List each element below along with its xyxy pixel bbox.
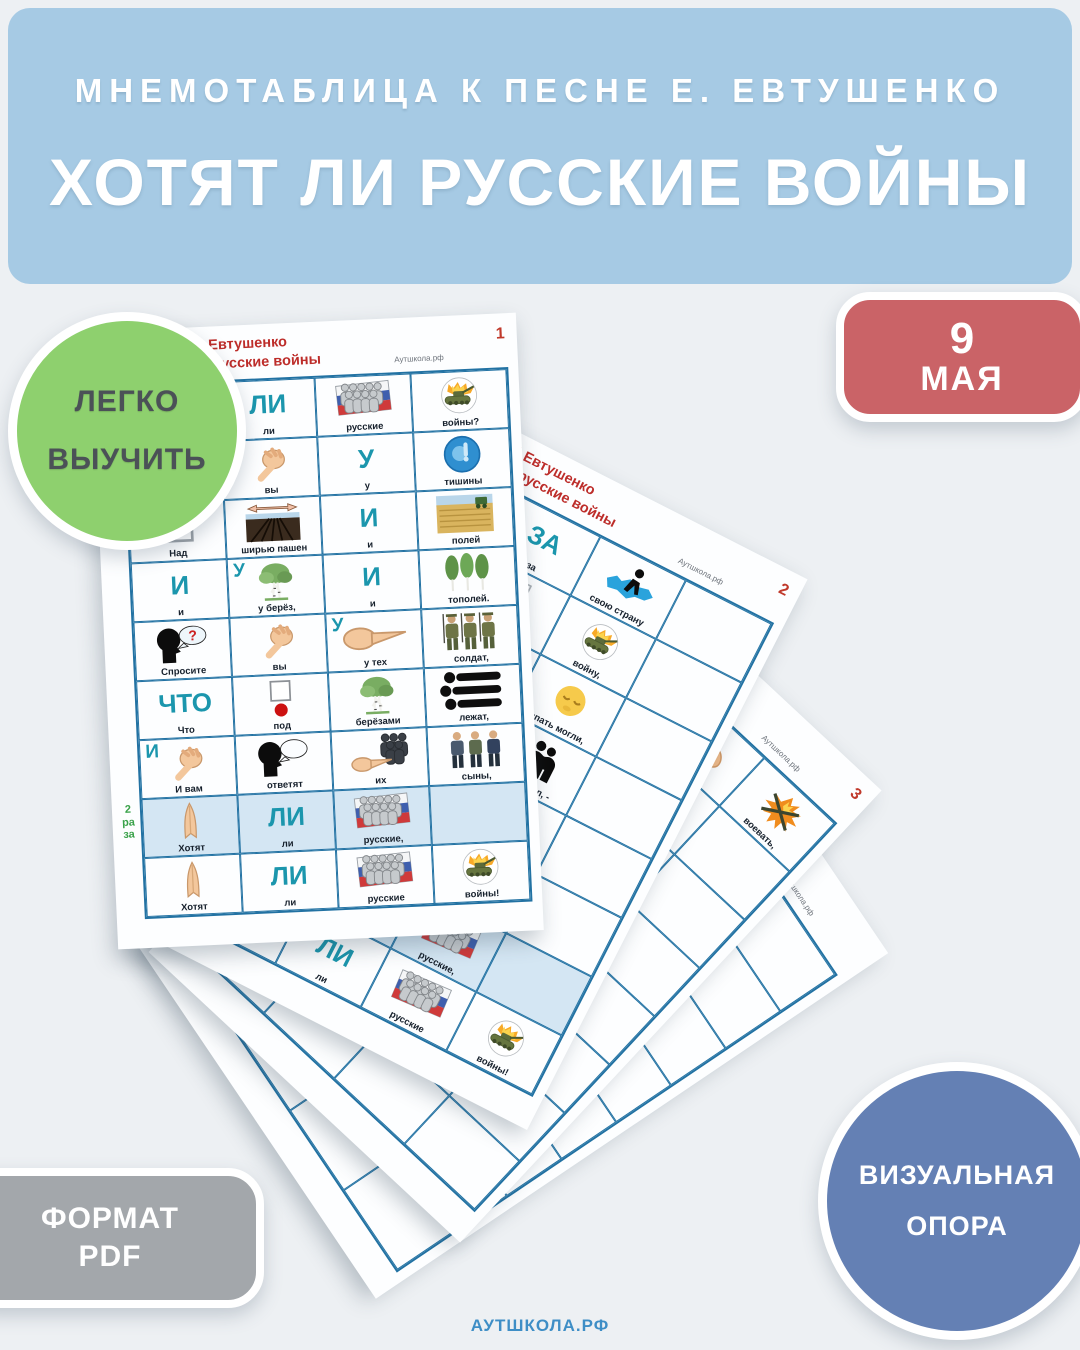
table-cell: ?Спросите — [133, 618, 232, 681]
table-cell: берёзами — [328, 668, 427, 731]
ask-head-icon: ? — [136, 621, 230, 668]
table-cell: Ии — [323, 550, 422, 613]
badge-text: 9 — [950, 317, 974, 362]
table-cell: ЛИли — [240, 849, 339, 912]
table-cell: ЛИли — [237, 790, 336, 853]
badge-text: PDF — [79, 1240, 142, 1274]
table-cell: Ии — [320, 491, 419, 554]
cell-caption: солдат, — [454, 652, 489, 665]
cell-caption: и — [370, 598, 376, 610]
cell-caption: под — [273, 720, 291, 732]
cell-caption: у берёз, — [258, 602, 296, 615]
repeat-twice-label: 2раза — [117, 803, 141, 842]
cell-caption: Хотят — [178, 842, 205, 855]
easy-to-learn-badge: ЛЕГКО ВЫУЧИТЬ — [8, 312, 246, 550]
table-cell: тишины — [413, 428, 512, 491]
table-cell: ширью пашен — [224, 496, 323, 559]
hand-soldiers-icon — [333, 730, 427, 777]
shh-icon — [415, 431, 509, 478]
cell-caption: Над — [169, 547, 188, 559]
point-you-icon — [231, 617, 325, 664]
svg-text:?: ? — [188, 628, 197, 644]
pdf-format-badge: ФОРМАТ PDF — [0, 1168, 264, 1308]
cell-caption: берёзами — [355, 715, 400, 728]
badge-text: ОПОРА — [906, 1211, 1008, 1242]
cell-caption: у — [365, 480, 371, 492]
cell-caption: войны? — [442, 416, 479, 429]
table-cell: Уу — [317, 432, 416, 495]
may-9-badge: 9 МАЯ — [836, 292, 1080, 422]
badge-text: ВЫУЧИТЬ — [47, 443, 206, 477]
cell-caption: ли — [263, 425, 275, 437]
sons-icon — [429, 726, 523, 773]
cell-caption: русские — [346, 420, 384, 433]
cell-caption: ли — [314, 971, 330, 987]
cell-caption: русские, — [363, 833, 403, 846]
cell-caption: войны! — [465, 888, 500, 901]
table-cell: вы — [229, 614, 328, 677]
cell-caption: полей — [452, 534, 481, 547]
poplars-icon — [421, 549, 515, 596]
header-panel: МНЕМОТАБЛИЦА К ПЕСНЕ Е. ЕВТУШЕНКО ХОТЯТ … — [8, 8, 1072, 284]
keyword-text: ЛИ — [267, 803, 305, 831]
cell-caption: Спросите — [161, 665, 207, 678]
cell-caption: и — [367, 539, 373, 551]
flag-people-icon — [335, 789, 429, 836]
cell-caption: русские — [367, 892, 405, 905]
sheet-page-number: 1 — [495, 325, 505, 343]
table-cell: ИИ вам — [139, 736, 238, 799]
pray-icon — [144, 798, 238, 845]
keyword-text: ЛИ — [249, 390, 287, 418]
badge-text: ФОРМАТ — [41, 1202, 179, 1236]
badge-text: МАЯ — [920, 362, 1003, 398]
table-cell: ЧТОЧто — [136, 677, 235, 740]
table-cell: Уу тех — [325, 609, 424, 672]
keyword-text: И — [359, 504, 379, 531]
answer-head-icon — [237, 735, 331, 782]
table-cell: войны? — [410, 369, 509, 432]
header-subtitle: МНЕМОТАБЛИЦА К ПЕСНЕ Е. ЕВТУШЕНКО — [75, 72, 1006, 110]
keyword-text: ЧТО — [158, 689, 213, 717]
cell-caption: у тех — [364, 656, 388, 668]
flag-people-icon — [317, 377, 411, 424]
page-title: ХОТЯТ ЛИ РУССКИЕ ВОЙНЫ — [49, 144, 1031, 220]
pray-icon — [146, 857, 240, 904]
visual-support-badge: ВИЗУАЛЬНАЯ ОПОРА — [818, 1062, 1080, 1340]
cell-caption: вы — [272, 661, 286, 673]
field-plow-icon — [226, 499, 320, 546]
cell-caption: сыны, — [462, 770, 492, 783]
table-cell: русские, — [333, 786, 432, 849]
tank-icon — [413, 372, 507, 419]
cell-caption: их — [375, 775, 387, 787]
birch-icon — [330, 671, 424, 718]
promo-poster: МНЕМОТАБЛИЦА К ПЕСНЕ Е. ЕВТУШЕНКО ХОТЯТ … — [0, 0, 1080, 1350]
table-cell: Ии — [131, 559, 230, 622]
table-cell: Хотят — [141, 795, 240, 858]
table-cell — [429, 782, 528, 845]
cell-caption: ли — [284, 897, 296, 909]
table-cell: войны! — [432, 841, 531, 904]
field-harvest-icon — [418, 490, 512, 537]
keyword-text: И — [145, 742, 160, 762]
cell-caption: лежат, — [459, 711, 489, 724]
keyword-text: И — [362, 563, 382, 590]
table-cell: Уу берёз, — [227, 555, 326, 618]
table-cell: полей — [416, 487, 515, 550]
cell-caption: и — [178, 607, 184, 619]
keyword-text: ЛИ — [270, 862, 308, 890]
cell-caption: Что — [178, 724, 196, 736]
table-cell: тополей. — [418, 546, 517, 609]
keyword-text: И — [170, 572, 190, 599]
soldiers-icon — [423, 608, 517, 655]
under-dot-icon — [234, 676, 328, 723]
cell-caption: вы — [264, 484, 278, 496]
table-cell: лежат, — [424, 664, 523, 727]
keyword-text: У — [358, 446, 375, 473]
keyword-text: ЗА — [523, 520, 566, 559]
badge-text: ВИЗУАЛЬНАЯ — [859, 1160, 1055, 1191]
table-cell: русские — [315, 373, 414, 436]
badge-text: ЛЕГКО — [75, 385, 180, 419]
table-cell: ответят — [235, 731, 334, 794]
cell-caption: ли — [281, 838, 293, 850]
table-cell: Хотят — [144, 854, 243, 917]
cell-caption: ответят — [267, 778, 303, 791]
table-cell: их — [331, 727, 430, 790]
table-cell: под — [232, 673, 331, 736]
cell-caption: ширью пашен — [241, 542, 308, 556]
cell-caption: тополей. — [448, 593, 490, 606]
keyword-text: У — [233, 561, 246, 581]
tank-icon — [434, 844, 528, 891]
cell-caption: И вам — [175, 783, 203, 796]
table-cell: сыны, — [426, 723, 525, 786]
table-cell: солдат, — [421, 605, 520, 668]
cell-caption: тишины — [444, 475, 483, 488]
keyword-text: У — [331, 616, 344, 636]
lying-icon — [426, 667, 520, 714]
cell-caption: Хотят — [181, 901, 208, 914]
table-cell: русские — [336, 845, 435, 908]
flag-people-icon — [338, 848, 432, 895]
